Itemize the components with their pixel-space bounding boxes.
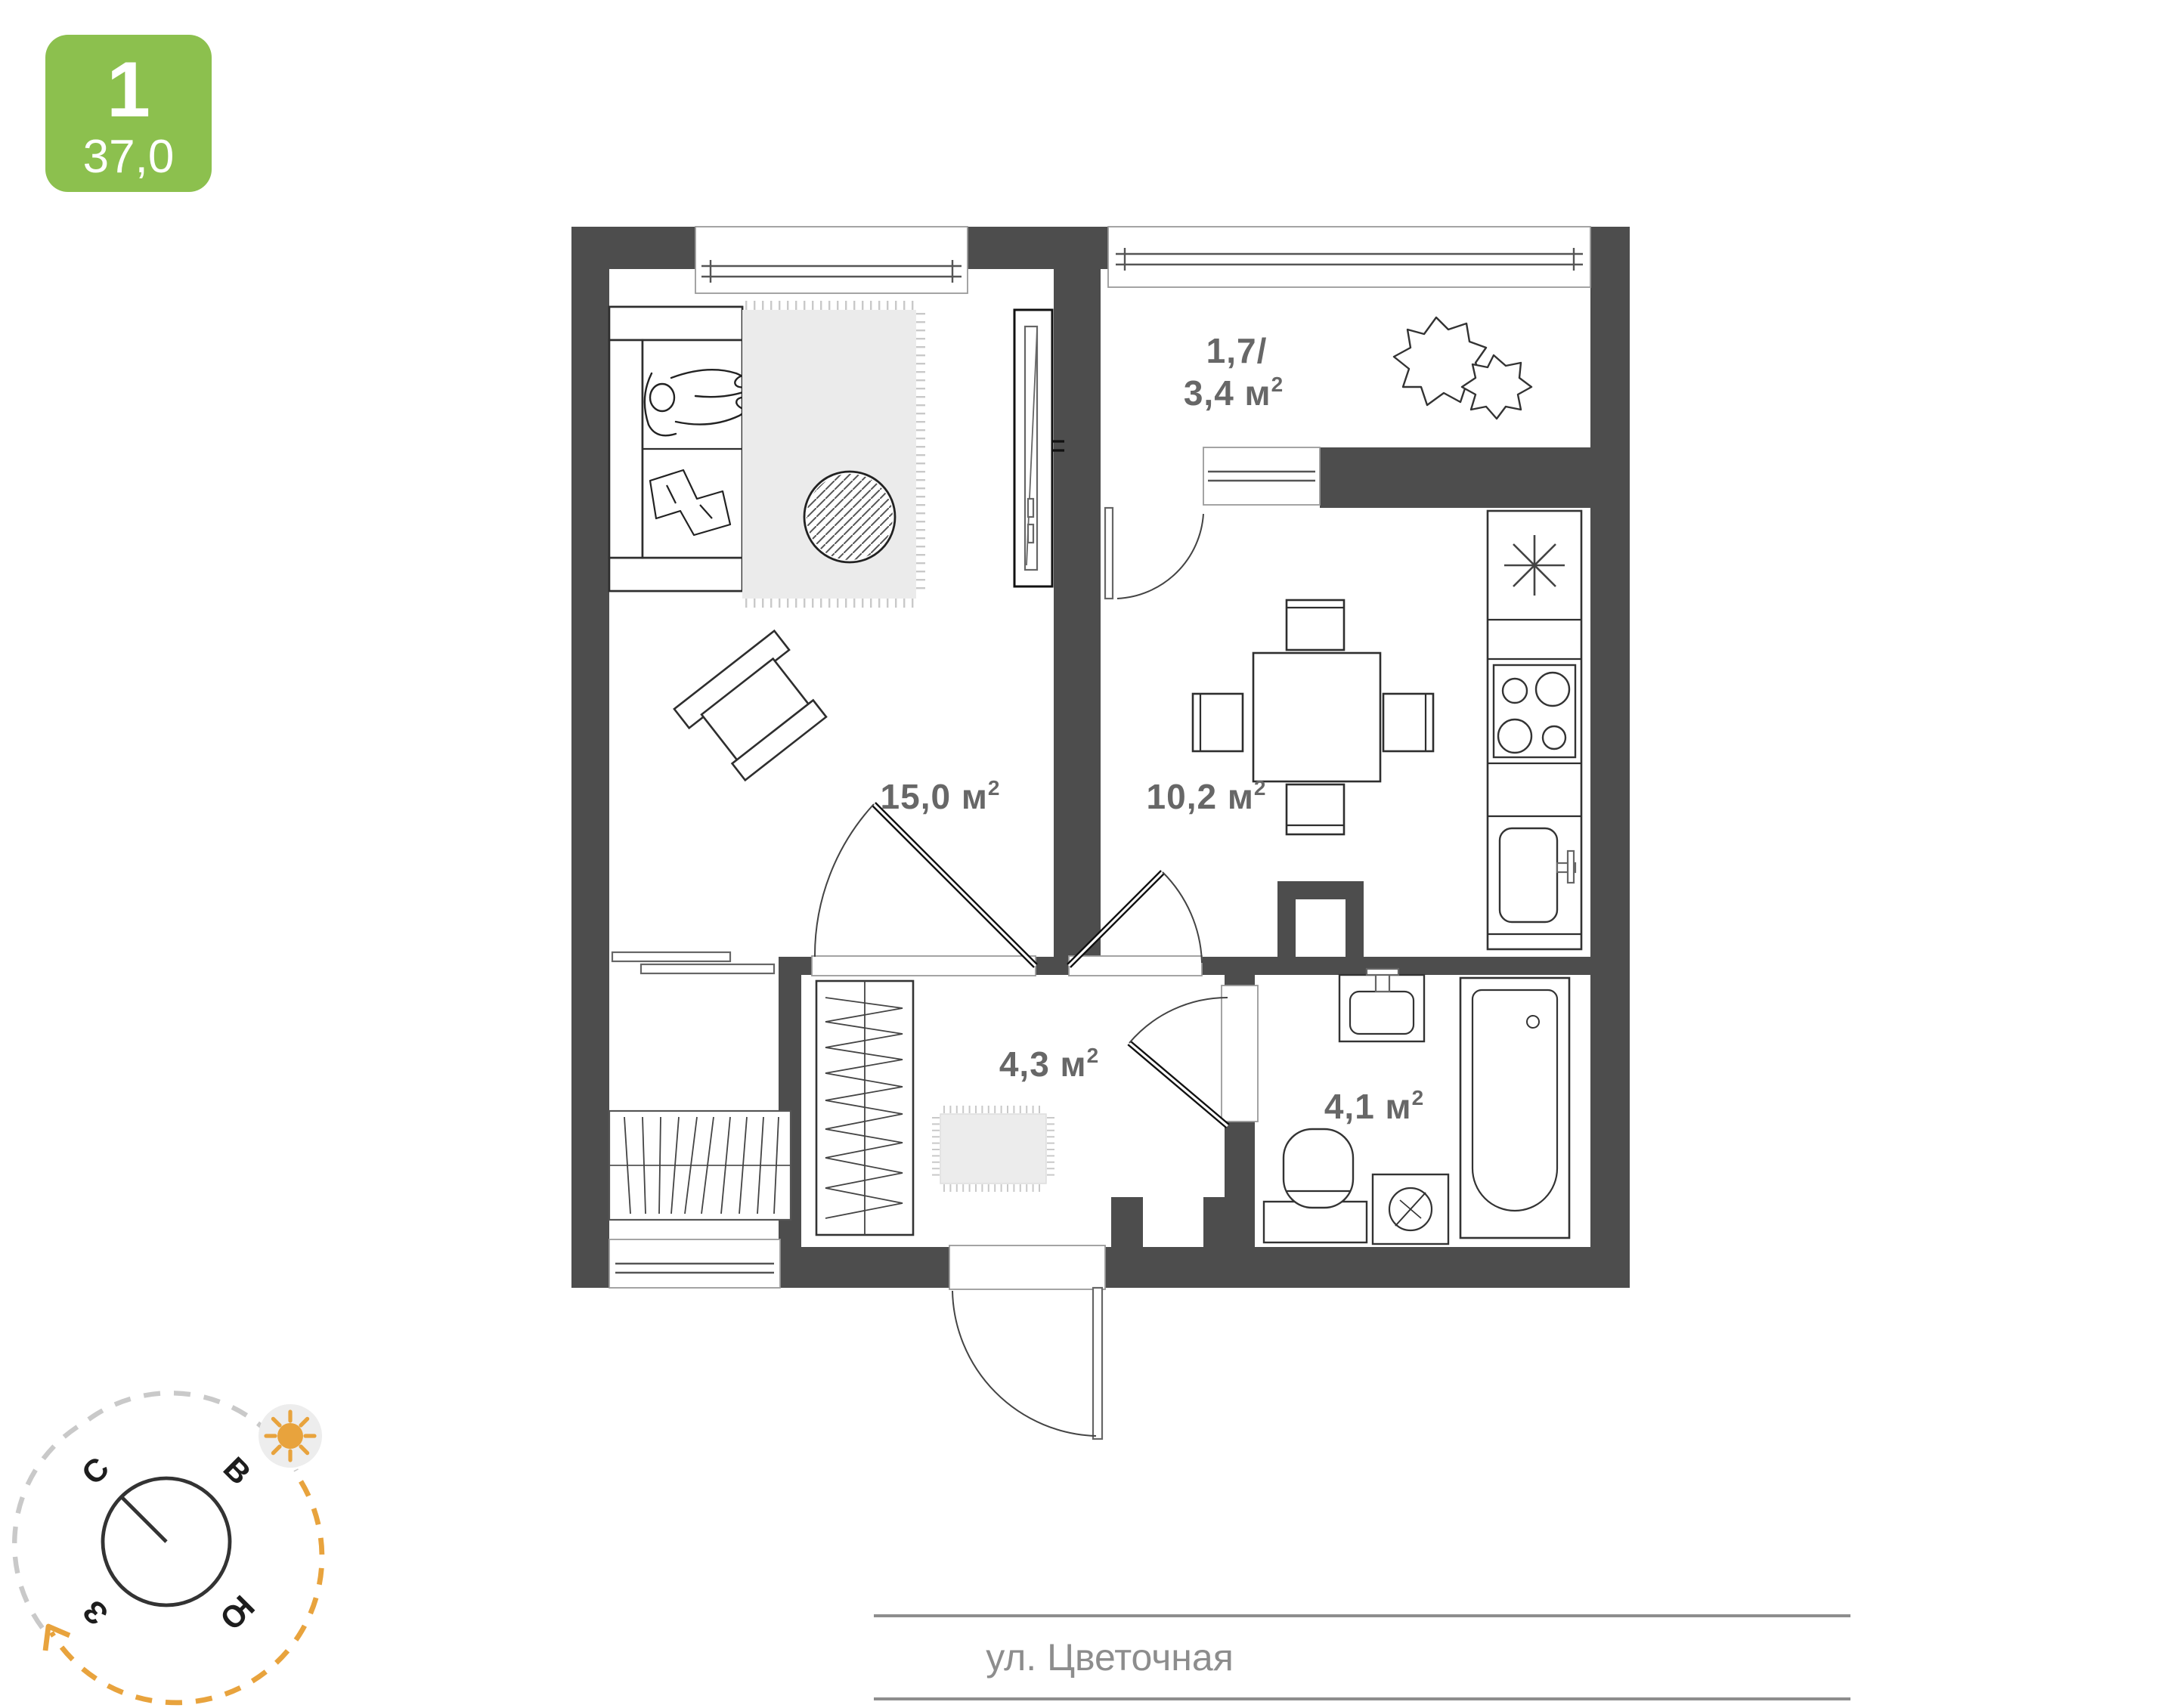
- washbasin: [1339, 969, 1424, 1041]
- wall-living-kitchen: [1054, 269, 1101, 975]
- compass-east: В: [217, 1450, 259, 1492]
- label-kitchen-area: 10,2 м2: [1147, 776, 1267, 816]
- living-room-window: [695, 227, 968, 293]
- compass-north: С: [75, 1450, 116, 1492]
- dining-table: [1253, 653, 1380, 781]
- compass-rose: С В Ю З: [14, 1393, 322, 1703]
- stove-burners: [1494, 665, 1575, 757]
- radiator: [609, 1111, 791, 1220]
- compass-south: Ю: [213, 1589, 262, 1637]
- duct-shaft: [1277, 881, 1364, 975]
- kitchen-door-sill: [1069, 956, 1202, 976]
- street-name: ул. Цветочная: [986, 1636, 1234, 1679]
- sofa: [609, 307, 742, 591]
- kitchen-balcony-window: [1203, 447, 1320, 505]
- bathroom-door-sill: [1222, 986, 1258, 1122]
- floorplan-canvas: 1 37,0: [0, 0, 2177, 1708]
- tv-unit: [1014, 310, 1052, 586]
- badge-room-count: 1: [107, 46, 150, 134]
- label-hallway-area: 4,3 м2: [999, 1044, 1099, 1084]
- dining-chair: [1193, 694, 1243, 751]
- wall-segment: [779, 957, 812, 975]
- wall-niche-stub: [1203, 1197, 1225, 1247]
- badge-total-area: 37,0: [83, 131, 175, 183]
- compass-west: З: [76, 1593, 115, 1632]
- compass-arrow: [45, 1626, 70, 1651]
- refrigerator-icon: [1504, 535, 1565, 596]
- label-balcony-area-2: 3,4 м2: [1184, 373, 1284, 413]
- balcony-glazing: [1108, 227, 1590, 287]
- wardrobe-hangers: [816, 981, 913, 1235]
- living-room-south-window: [609, 1239, 780, 1288]
- label-balcony-area-1: 1,7/: [1206, 331, 1268, 370]
- street-label: ул. Цветочная: [874, 1616, 1850, 1699]
- floor-plan: 15,0 м2 10,2 м2 4,3 м2 4,1 м2 1,7/ 3,4 м…: [571, 227, 1630, 1439]
- entrance-door: [949, 1245, 1105, 1439]
- wall-niche-stub: [1111, 1197, 1143, 1247]
- living-door-sill: [812, 956, 1036, 976]
- floorplan-page: 1 37,0: [0, 0, 2177, 1708]
- pouf: [804, 472, 895, 562]
- sun-icon: [259, 1404, 322, 1468]
- washing-machine: [1373, 1174, 1448, 1244]
- apartment-badge: 1 37,0: [45, 35, 212, 192]
- dining-chair: [1287, 600, 1344, 650]
- doormat: [936, 1109, 1051, 1188]
- dining-chair: [1287, 784, 1344, 834]
- wall-door-stub: [1036, 957, 1069, 975]
- label-living-area: 15,0 м2: [881, 776, 1001, 816]
- wall-balcony-kitchen: [1320, 447, 1590, 508]
- dining-chair: [1383, 694, 1433, 751]
- label-bathroom-area: 4,1 м2: [1324, 1086, 1424, 1126]
- bathtub: [1460, 978, 1569, 1238]
- wall-segment: [1202, 957, 1258, 975]
